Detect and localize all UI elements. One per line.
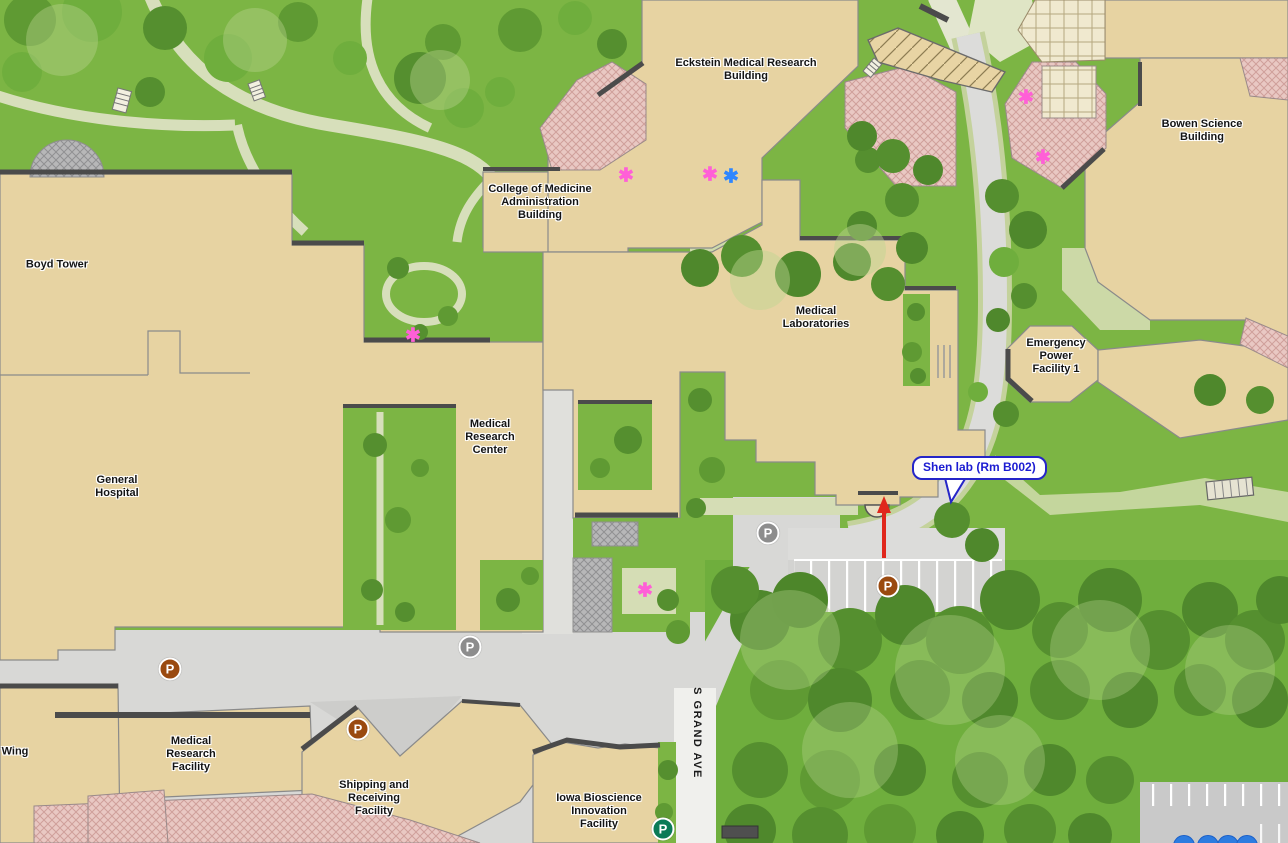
map-button-icon[interactable]: [1236, 835, 1258, 843]
campus-map: Boyd Tower General Hospital Eckstein Med…: [0, 0, 1288, 843]
map-button-icon[interactable]: [1173, 835, 1195, 843]
map-buttons-layer: [0, 0, 1288, 843]
map-button-icon[interactable]: [1197, 835, 1219, 843]
